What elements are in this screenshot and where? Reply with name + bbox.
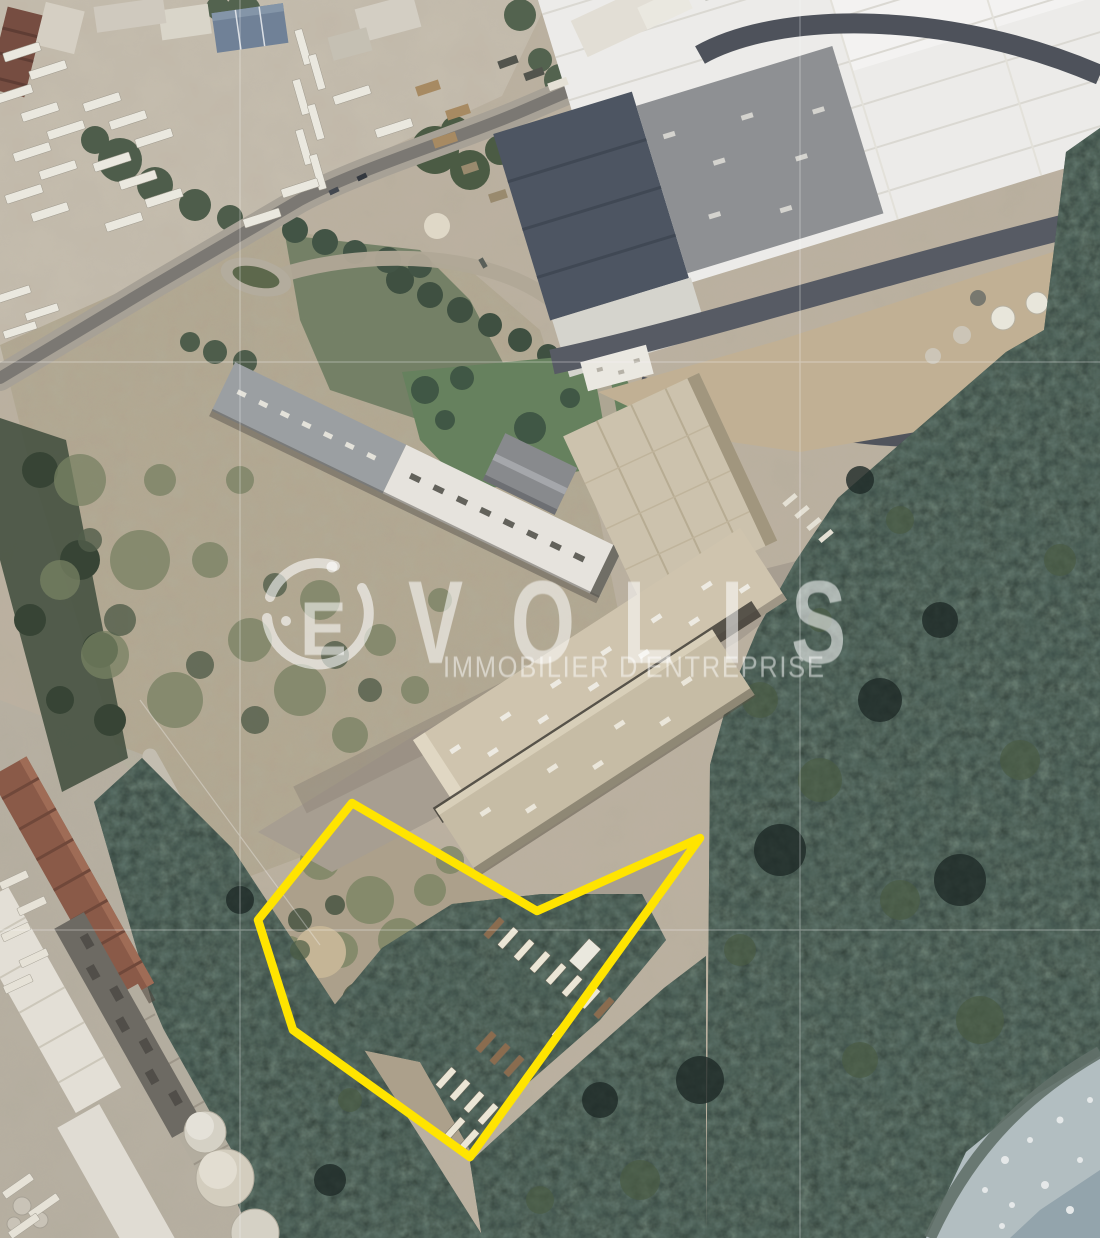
watermark-tagline: IMMOBILIER D'ENTREPRISE: [443, 651, 826, 685]
watermark-brand-initial: E: [300, 586, 348, 673]
aerial-photo: E VOLIS IMMOBILIER D'ENTREPRISE: [0, 0, 1100, 1238]
